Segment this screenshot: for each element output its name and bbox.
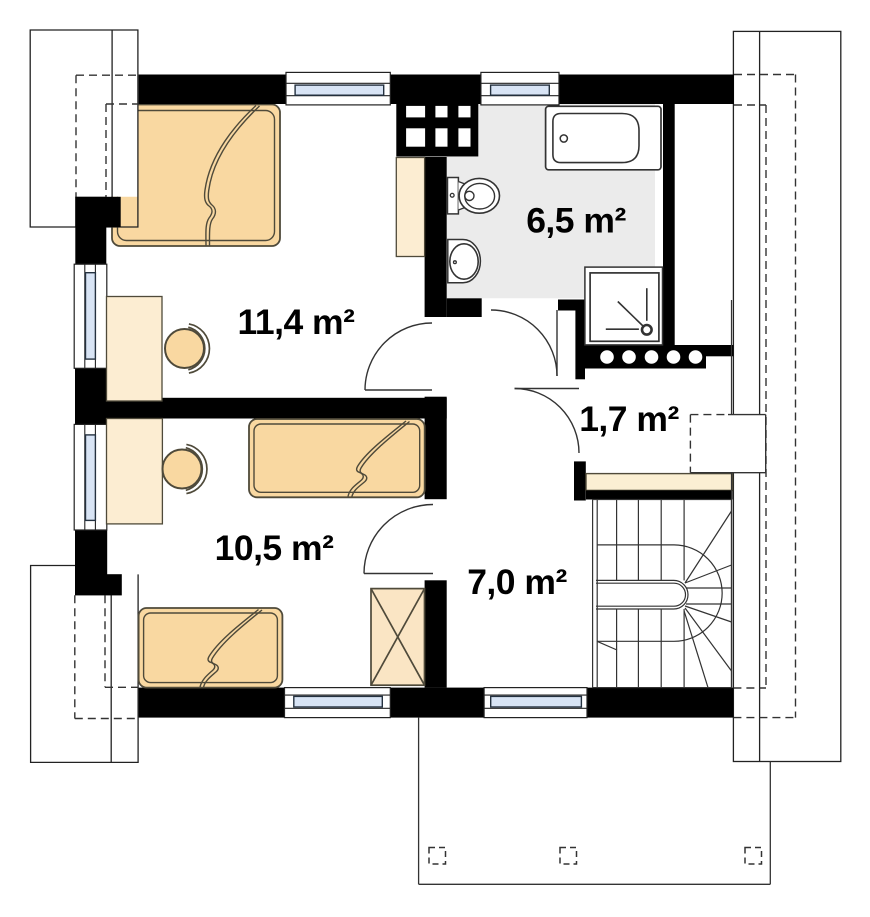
svg-text:6,5 m²: 6,5 m² xyxy=(526,201,626,241)
svg-text:1,7 m²: 1,7 m² xyxy=(579,399,679,439)
svg-text:7,0 m²: 7,0 m² xyxy=(467,562,567,602)
svg-text:10,5 m²: 10,5 m² xyxy=(215,528,335,568)
svg-text:11,4 m²: 11,4 m² xyxy=(238,302,356,342)
